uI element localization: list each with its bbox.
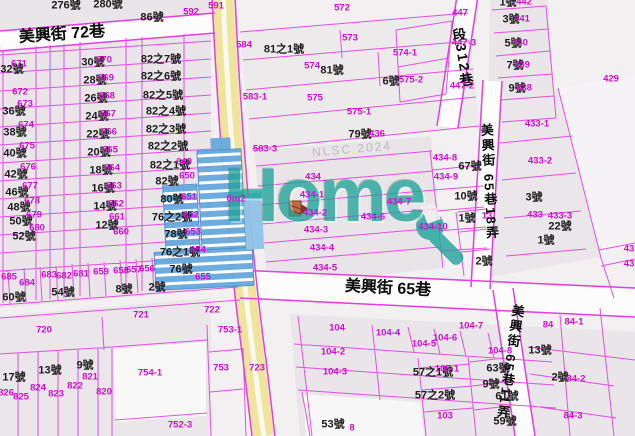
cadastral-map-canvas[interactable]: NLSC 2024 Home 美興街 72巷美興街 65巷段312巷美興街 65… <box>0 0 635 436</box>
home-logo-watermark: Home <box>224 158 423 234</box>
